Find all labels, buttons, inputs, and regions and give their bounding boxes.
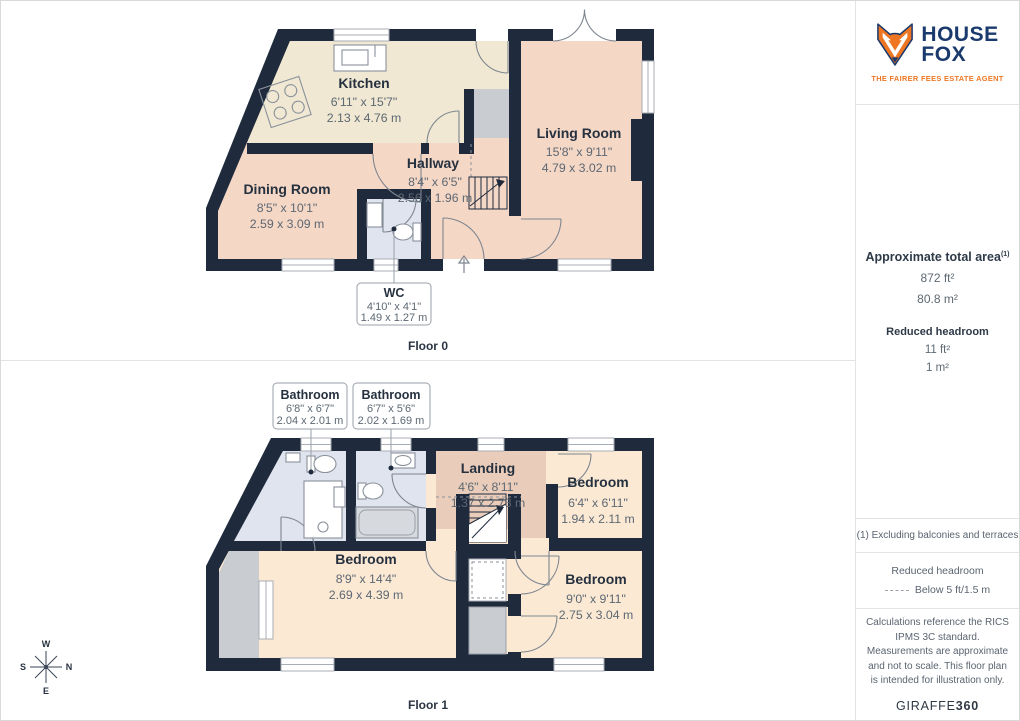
floor0-svg: WC 4'10" x 4'1" 1.49 x 1.27 m Kitchen 6'… (1, 1, 856, 360)
brand-name: GIRAFFE (896, 699, 956, 713)
reduced-headroom-metric: 1 m² (926, 362, 949, 374)
floor0-panel: WC 4'10" x 4'1" 1.49 x 1.27 m Kitchen 6'… (1, 1, 856, 361)
bedroom-large-metric: 2.69 x 4.39 m (329, 588, 404, 602)
logo-tagline: THE FAIRER FEES ESTATE AGENT (856, 74, 1019, 83)
compass-east: E (43, 686, 49, 696)
living-room-imperial: 15'8" x 9'11" (546, 145, 613, 159)
total-area-imperial: 872 ft² (920, 271, 954, 285)
floor0-label: Floor 0 (408, 339, 448, 353)
area-summary: Approximate total area(1) 872 ft² 80.8 m… (856, 105, 1019, 519)
landing-metric: 1.37 x 2.73 m (451, 496, 526, 510)
kitchen-imperial: 6'11" x 15'7" (331, 95, 398, 109)
hallway-imperial: 8'4" x 6'5" (408, 175, 462, 189)
living-room-metric: 4.79 x 3.02 m (542, 161, 617, 175)
bedroom-right-name: Bedroom (565, 571, 626, 587)
bedroom-small-name: Bedroom (567, 474, 628, 490)
dining-room-metric: 2.59 x 3.09 m (250, 217, 325, 231)
legend-item-text: Below 5 ft/1.5 m (915, 584, 990, 596)
living-room-name: Living Room (537, 125, 622, 141)
legend-item: Below 5 ft/1.5 m (885, 584, 990, 596)
logo-line1: HOUSE (921, 25, 998, 45)
hallway-metric: 2.56 x 1.96 m (398, 191, 473, 205)
bathroom2-metric: 2.02 x 1.69 m (358, 415, 425, 427)
info-sidebar: HOUSE FOX THE FAIRER FEES ESTATE AGENT A… (855, 1, 1019, 720)
floorplan-panels: WC 4'10" x 4'1" 1.49 x 1.27 m Kitchen 6'… (1, 1, 856, 720)
giraffe360-brand: GIRAFFE360 (896, 699, 979, 713)
area-footnote: (1) Excluding balconies and terraces (856, 519, 1019, 553)
kitchen-name: Kitchen (338, 75, 389, 91)
floor1-label: Floor 1 (408, 698, 448, 712)
headroom-legend: Reduced headroom Below 5 ft/1.5 m (856, 553, 1019, 609)
landing-imperial: 4'6" x 8'11" (458, 480, 518, 494)
total-area-title: Approximate total area(1) (865, 250, 1009, 264)
wc-metric: 1.49 x 1.27 m (361, 312, 428, 324)
wc-name: WC (384, 286, 405, 300)
reduced-headroom-imperial: 11 ft² (925, 344, 950, 356)
bedroom-right-metric: 2.75 x 3.04 m (559, 608, 634, 622)
total-area-footnote-marker: (1) (1001, 250, 1010, 257)
landing-name: Landing (461, 460, 515, 476)
dining-room-imperial: 8'5" x 10'1" (257, 201, 318, 215)
bathroom1-name: Bathroom (280, 388, 339, 402)
dashed-line-icon (885, 590, 909, 591)
bathroom1-imperial: 6'8" x 6'7" (286, 403, 334, 415)
fox-icon (876, 23, 914, 67)
compass-icon: W S N E (20, 639, 72, 696)
dining-room-name: Dining Room (243, 181, 330, 197)
compass-west: W (42, 639, 51, 649)
cupboard (469, 559, 506, 601)
reduced-headroom-void (219, 551, 259, 658)
compass-north: N (66, 662, 73, 672)
bedroom-large-name: Bedroom (335, 551, 396, 567)
reduced-headroom-title: Reduced headroom (886, 326, 989, 338)
floor1-panel: Bathroom 6'8" x 6'7" 2.04 x 2.01 m Bathr… (1, 361, 856, 720)
bathroom1-metric: 2.04 x 2.01 m (277, 415, 344, 427)
kitchen-sink (334, 45, 386, 71)
bathroom2-imperial: 6'7" x 5'6" (367, 403, 415, 415)
compass-south: S (20, 662, 26, 672)
bathroom2-name: Bathroom (361, 388, 420, 402)
bedroom-small-metric: 1.94 x 2.11 m (561, 512, 635, 526)
agency-logo: HOUSE FOX THE FAIRER FEES ESTATE AGENT (856, 1, 1019, 105)
total-area-title-text: Approximate total area (865, 250, 1000, 264)
floor1-svg: Bathroom 6'8" x 6'7" 2.04 x 2.01 m Bathr… (1, 361, 856, 720)
kitchen-metric: 2.13 x 4.76 m (327, 111, 402, 125)
bedroom-right-imperial: 9'0" x 9'11" (566, 592, 626, 606)
bedroom-large-imperial: 8'9" x 14'4" (336, 572, 397, 586)
total-area-metric: 80.8 m² (917, 292, 958, 306)
logo-wordmark: HOUSE FOX (921, 25, 998, 64)
floor0-store-void (474, 89, 509, 138)
disclaimer-section: Calculations reference the RICS IPMS 3C … (856, 609, 1019, 720)
hallway-name: Hallway (407, 155, 459, 171)
bedroom-small-imperial: 6'4" x 6'11" (568, 496, 628, 510)
floor1-void-box (469, 607, 506, 654)
disclaimer-text: Calculations reference the RICS IPMS 3C … (866, 616, 1009, 689)
floorplan-page: WC 4'10" x 4'1" 1.49 x 1.27 m Kitchen 6'… (0, 0, 1020, 721)
brand-suffix: 360 (956, 699, 979, 713)
logo-line2: FOX (921, 45, 998, 65)
legend-title: Reduced headroom (891, 565, 983, 577)
